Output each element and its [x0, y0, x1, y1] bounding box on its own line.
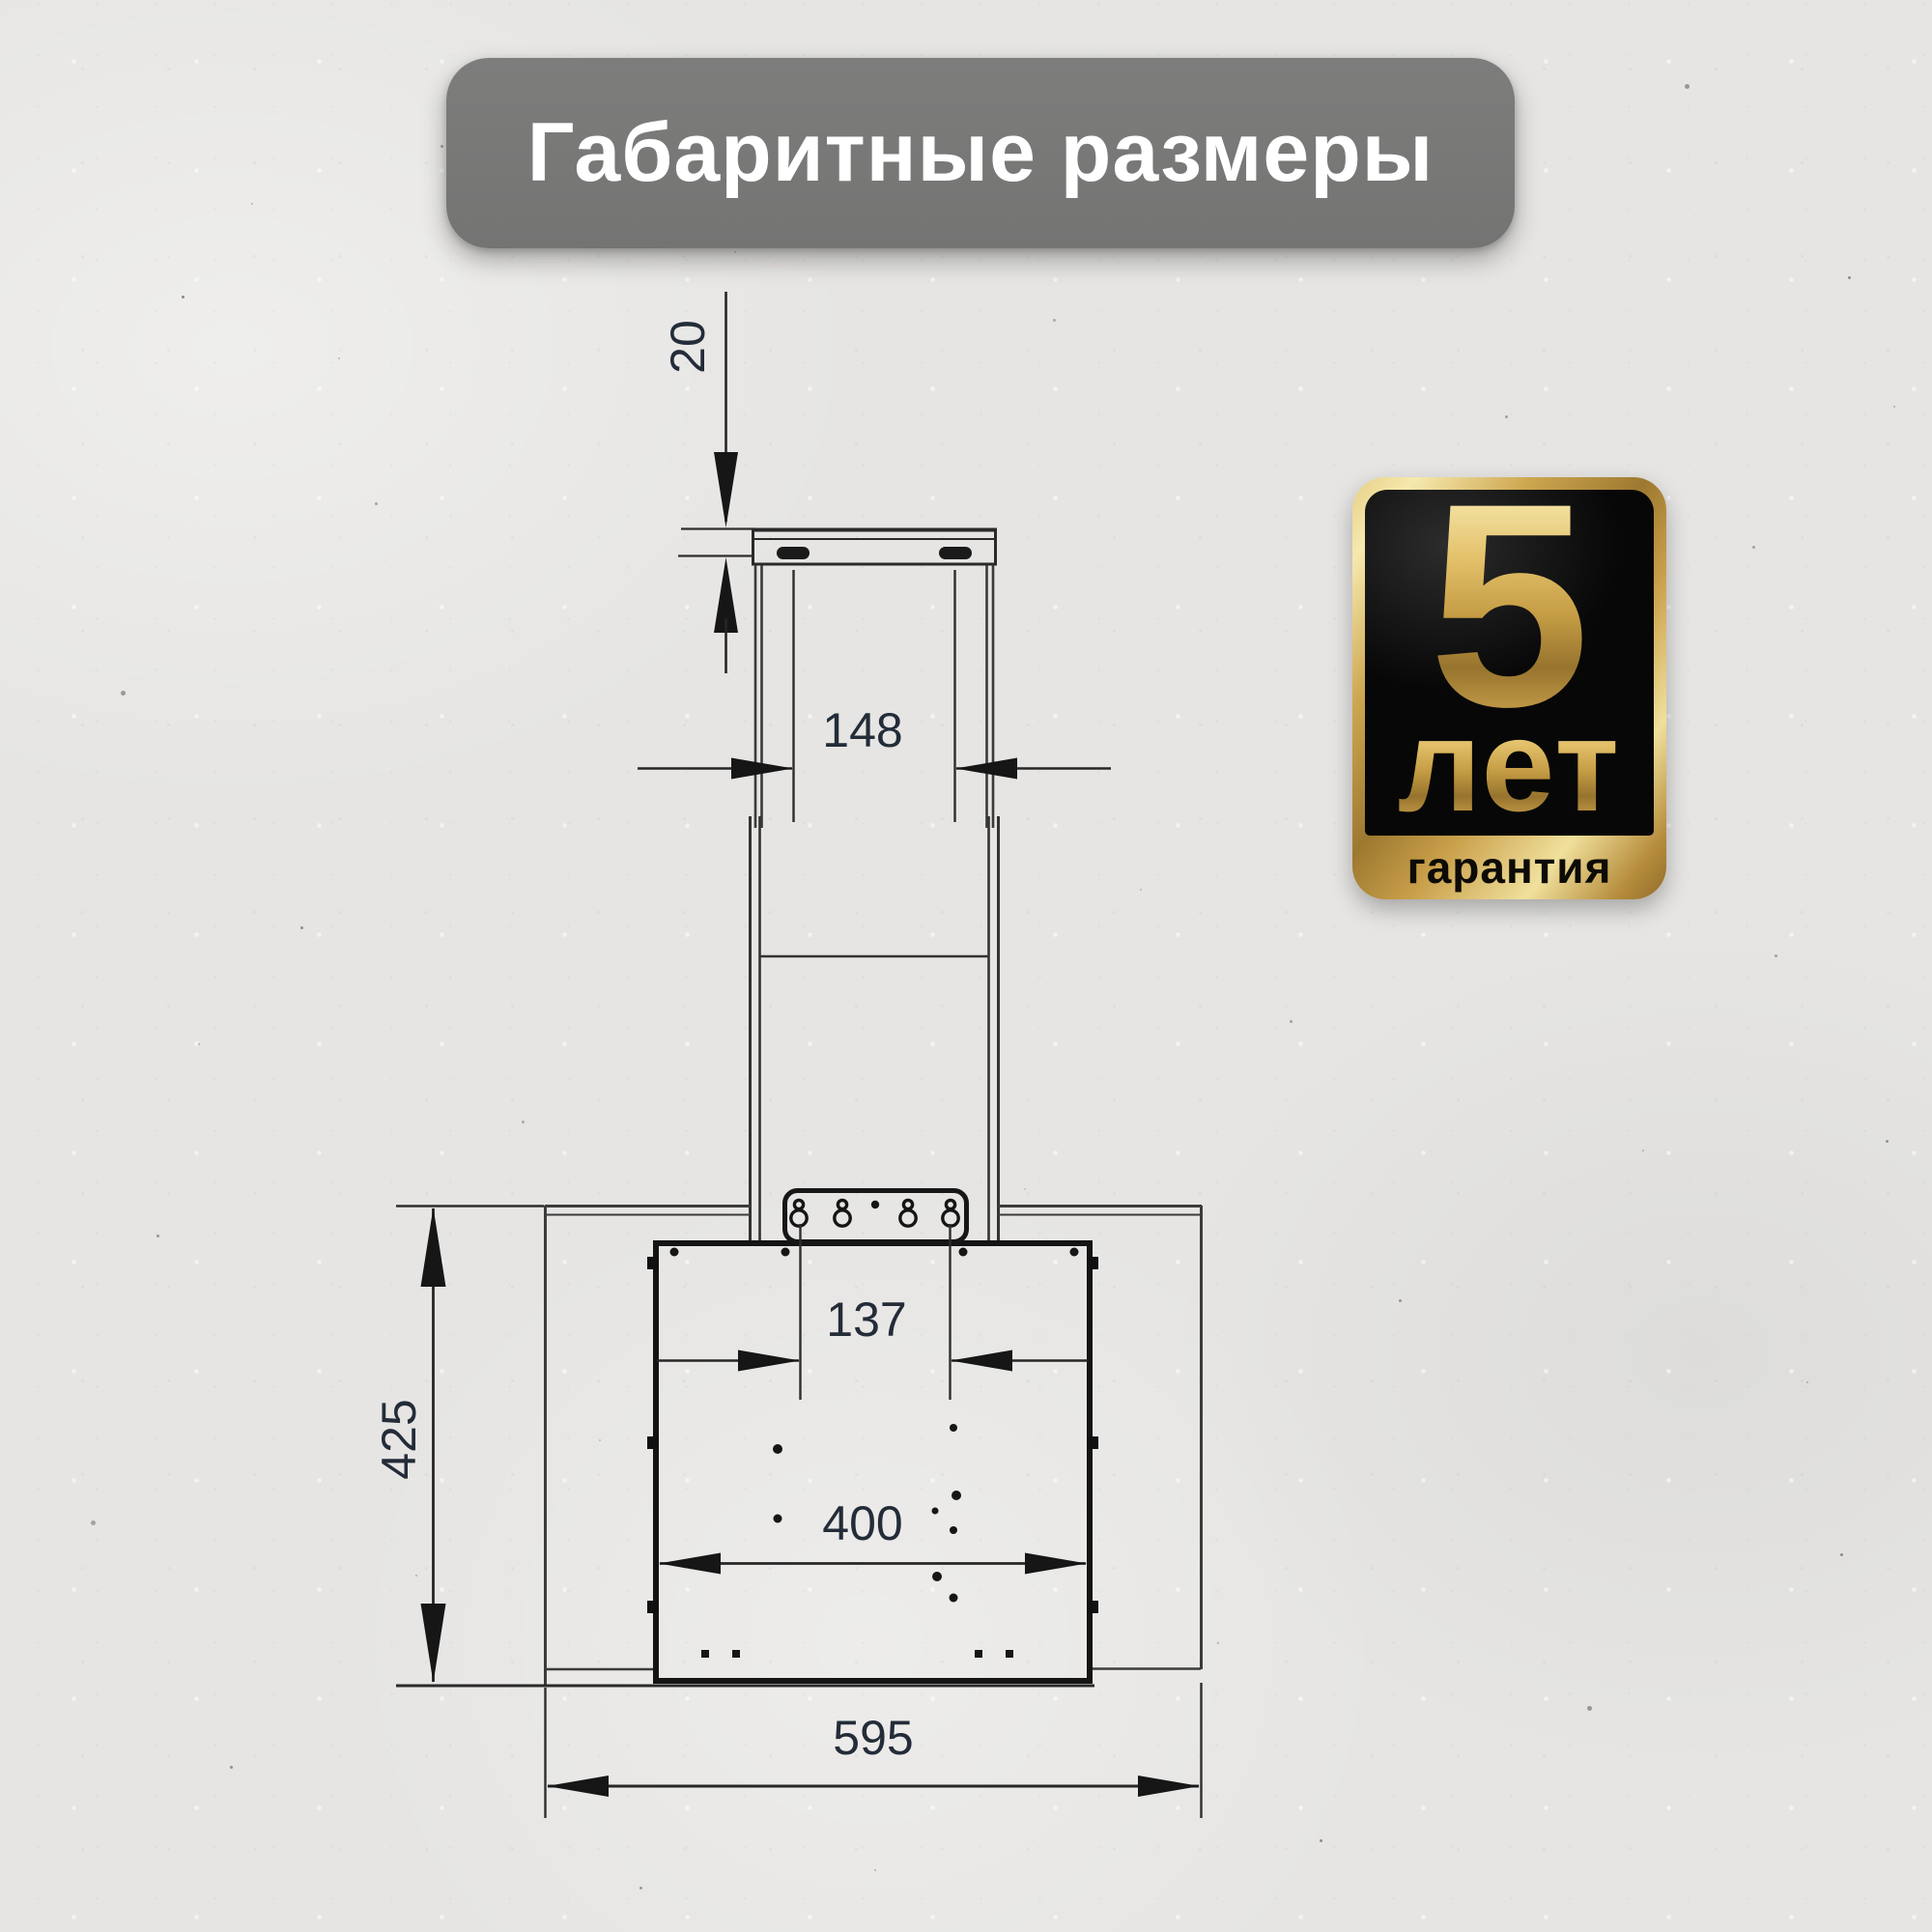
dim-label-137: 137: [826, 1293, 906, 1347]
dim-425: 425: [372, 1207, 544, 1684]
dim-label-425: 425: [372, 1399, 426, 1479]
mounting-bracket: [785, 1191, 967, 1242]
vent-slot-left: [777, 547, 810, 559]
dim-label-20: 20: [661, 320, 715, 374]
arrow-down-icon: [714, 452, 738, 527]
dim-label-400: 400: [822, 1496, 902, 1550]
arrow-down-icon: [421, 1604, 446, 1683]
keyhole-slot: [943, 1200, 958, 1226]
keyhole-slot: [835, 1200, 850, 1226]
keyhole-slot: [791, 1200, 807, 1226]
arrow-left-icon: [951, 1350, 1012, 1372]
dim-label-595: 595: [833, 1711, 913, 1765]
bracket-center-hole: [871, 1201, 879, 1208]
arrow-left-icon: [547, 1776, 609, 1797]
glass-panel: [396, 1206, 1202, 1686]
dim-label-148: 148: [822, 703, 902, 757]
keyhole-slot: [900, 1200, 916, 1226]
chimney-upper-duct: [755, 565, 993, 828]
arrow-left-icon: [659, 1553, 721, 1575]
chimney-lower-duct: [751, 816, 999, 1242]
arrow-right-icon: [1025, 1553, 1087, 1575]
cap-vent-slots: [777, 547, 972, 559]
product-card: Габаритные размеры 5 лет гарантия: [0, 0, 1932, 1932]
duct-inner-lines: [794, 570, 955, 822]
dim-20: 20: [661, 292, 754, 673]
dim-137: 137: [657, 1224, 1089, 1400]
dim-148: 148: [638, 703, 1111, 780]
arrow-right-icon: [1138, 1776, 1200, 1797]
dim-595: 595: [546, 1683, 1202, 1818]
vent-slot-right: [939, 547, 972, 559]
dim-400: 400: [659, 1496, 1087, 1575]
arrow-right-icon: [738, 1350, 800, 1372]
dimension-drawing: 20 148: [0, 0, 1932, 1932]
arrow-up-icon: [421, 1207, 446, 1287]
